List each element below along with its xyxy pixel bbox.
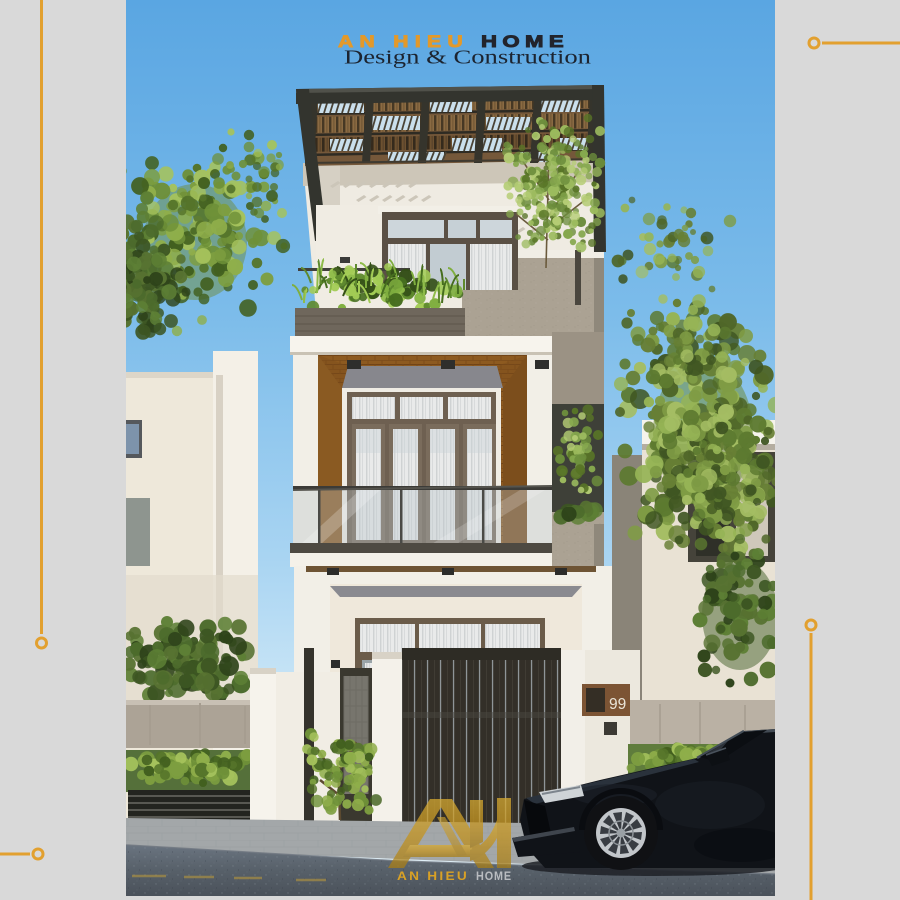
svg-text:99: 99 bbox=[609, 696, 626, 713]
svg-text:Design & Construction: Design & Construction bbox=[344, 47, 591, 69]
svg-text:HOME: HOME bbox=[476, 869, 512, 883]
svg-text:AN HIEU: AN HIEU bbox=[397, 869, 469, 883]
